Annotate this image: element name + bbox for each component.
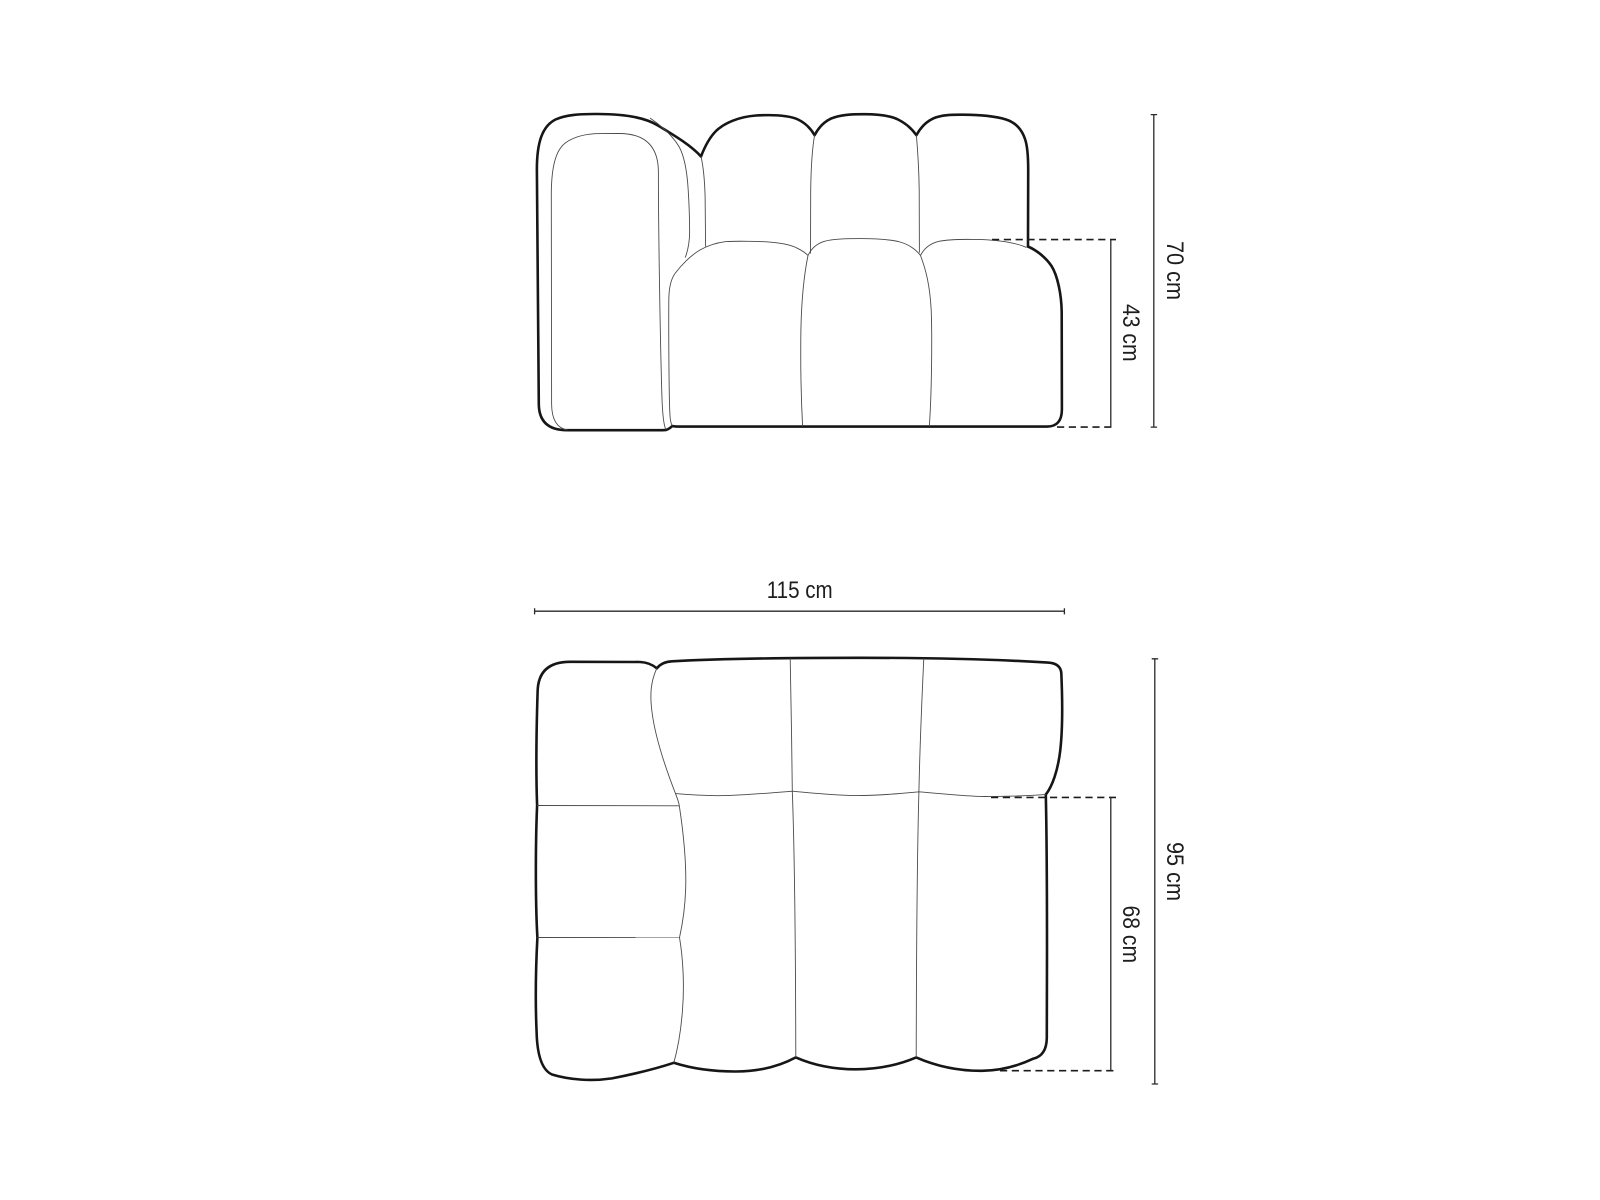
svg-text:115 cm: 115 cm [767,577,833,604]
svg-text:70 cm: 70 cm [1161,241,1188,300]
svg-text:68 cm: 68 cm [1117,906,1144,964]
svg-text:43 cm: 43 cm [1117,304,1144,362]
svg-text:95 cm: 95 cm [1161,842,1188,901]
